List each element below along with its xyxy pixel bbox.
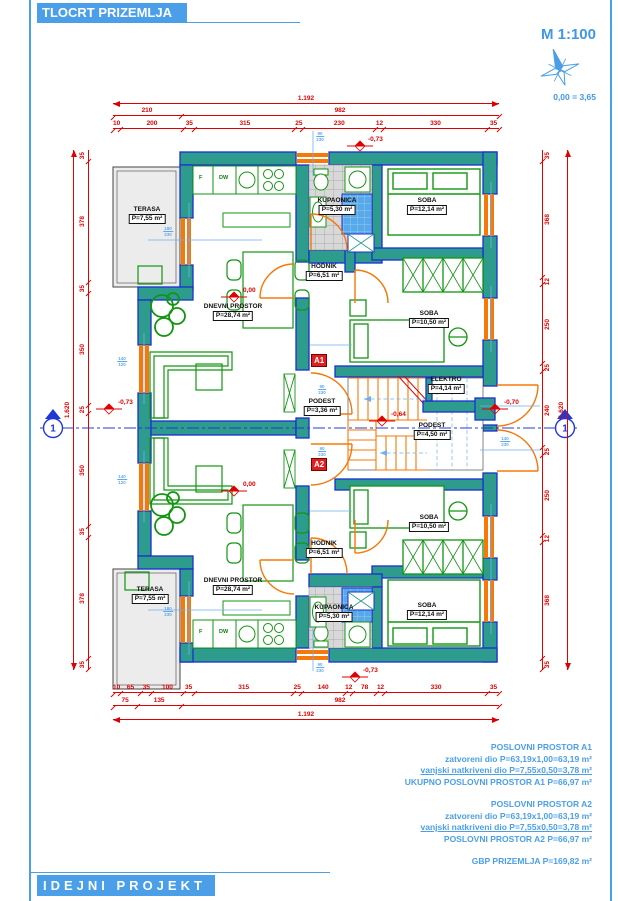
- dim-bottom-row2: 75 135 982: [113, 695, 499, 706]
- opening-mark-terasa-top: 180230: [163, 226, 173, 237]
- dim-top-row2: 210 982: [113, 105, 499, 116]
- room-label-terasa-a2: TERASAP=7,55 m²: [132, 586, 169, 604]
- apartment-badge-a2: A2: [311, 458, 327, 471]
- dim-bottom-row1: 10 65 35 100 35 315 25 140 12 78 12 330 …: [113, 682, 499, 693]
- level-terrace-side: -0,73: [118, 399, 133, 406]
- room-label-soba-mala-a1: SOBAP=10,50 m²: [409, 310, 449, 328]
- room-label-dnevni-a2: DNEVNI PROSTORP=28,74 m²: [204, 577, 262, 595]
- dim-top-total: 1.192: [113, 92, 499, 104]
- level-zero-a1: 0,00: [243, 287, 256, 294]
- dim-bottom-total: 1.192: [113, 708, 499, 720]
- level-entry-bottom: -0,73: [363, 667, 378, 674]
- summary-a1-closed: zatvoreni dio P=63,19x1,00=63,19 m²: [262, 754, 592, 766]
- summary-a1-total: UKUPNO POSLOVNI PROSTOR A1 P=66,97 m²: [262, 777, 592, 789]
- room-label-soba-velika-a2: SOBAP=12,14 m²: [407, 602, 447, 620]
- opening-mark-entry-right: 140230: [500, 436, 510, 447]
- area-summary: POSLOVNI PROSTOR A1 zatvoreni dio P=63,1…: [262, 742, 592, 868]
- dim-right-segments: 35 368 12 250 25 240 25 250 12 368 35: [542, 150, 553, 670]
- level-entry-right: -0,70: [504, 399, 519, 406]
- dim-right-total: 1.620: [556, 150, 568, 670]
- kitchen-dw-a2: DW: [219, 629, 228, 635]
- footer-line: [30, 872, 330, 873]
- apartment-badge-a1: A1: [311, 354, 327, 367]
- summary-a1-title: POSLOVNI PROSTOR A1: [262, 742, 592, 754]
- room-label-kupaonica-a1: KUPAONICAP=5,30 m²: [318, 197, 357, 215]
- kitchen-f-a2: F: [199, 629, 202, 635]
- room-label-elektro: ELEKTROP=4,14 m²: [428, 376, 465, 394]
- opening-mark-door-a1: 90230: [318, 384, 326, 395]
- room-label-soba-mala-a2: SOBAP=10,50 m²: [409, 514, 449, 532]
- opening-mark-entry-bottom: 90230: [316, 662, 324, 673]
- level-entry-top: -0,73: [368, 136, 383, 143]
- section-number-right: 1: [562, 424, 568, 435]
- room-label-podest-ulaz: PODESTP=3,36 m²: [304, 398, 341, 416]
- kitchen-bottom: [193, 601, 296, 648]
- kitchen-dw-a1: DW: [219, 175, 228, 181]
- summary-a1-covered: vanjski natkriveni dio P=7,55x0,50=3,78 …: [262, 765, 592, 777]
- summary-a2-closed: zatvoreni dio P=63,19x1,00=63,19 m²: [262, 811, 592, 823]
- opening-mark-window-left-top: 140120: [117, 356, 127, 367]
- dim-top-row3: 10 200 35 315 25 230 12 330 35: [113, 118, 499, 129]
- kitchen-f-a1: F: [199, 175, 202, 181]
- kitchen-top: [193, 166, 296, 227]
- room-label-soba-velika-a1: SOBAP=12,14 m²: [407, 197, 447, 215]
- dim-left-total: 1.620: [62, 150, 74, 670]
- section-number-left: 1: [50, 424, 56, 435]
- room-label-dnevni-a1: DNEVNI PROSTORP=28,74 m²: [204, 303, 262, 321]
- level-stairs: -0,64: [391, 411, 406, 418]
- room-label-hodnik-a2: HODNIKP=6,51 m²: [306, 540, 343, 558]
- summary-a2-total: POSLOVNI PROSTOR A2 P=66,97 m²: [262, 834, 592, 846]
- opening-mark-door-a2: 90230: [318, 446, 326, 457]
- dim-left-segments: 35 378 35 350 25 350 35 378 35: [78, 150, 89, 670]
- opening-mark-entry-top: 90230: [316, 131, 324, 142]
- opening-mark-terasa-bottom: 180230: [163, 606, 173, 617]
- level-zero-a2: 0,00: [243, 481, 256, 488]
- opening-mark-window-left-bottom: 140120: [117, 474, 127, 485]
- summary-a2-title: POSLOVNI PROSTOR A2: [262, 799, 592, 811]
- room-label-kupaonica-a2: KUPAONICAP=5,30 m²: [315, 604, 354, 622]
- footer-bar: IDEJNI PROJEKT: [37, 875, 215, 896]
- room-label-terasa-a1: TERASAP=7,55 m²: [129, 206, 166, 224]
- room-label-podest-stube: PODESTP=4,50 m²: [414, 422, 451, 440]
- summary-gbp: GBP PRIZEMLJA P=169,82 m²: [262, 856, 592, 868]
- summary-a2-covered: vanjski natkriveni dio P=7,55x0,50=3,78 …: [262, 822, 592, 834]
- drawing-sheet: TLOCRT PRIZEMLJA M 1:100 0,00 = 3,65: [0, 0, 618, 901]
- room-label-hodnik-a1: HODNIKP=6,51 m²: [306, 263, 343, 281]
- project-phase-label: IDEJNI PROJEKT: [43, 878, 206, 893]
